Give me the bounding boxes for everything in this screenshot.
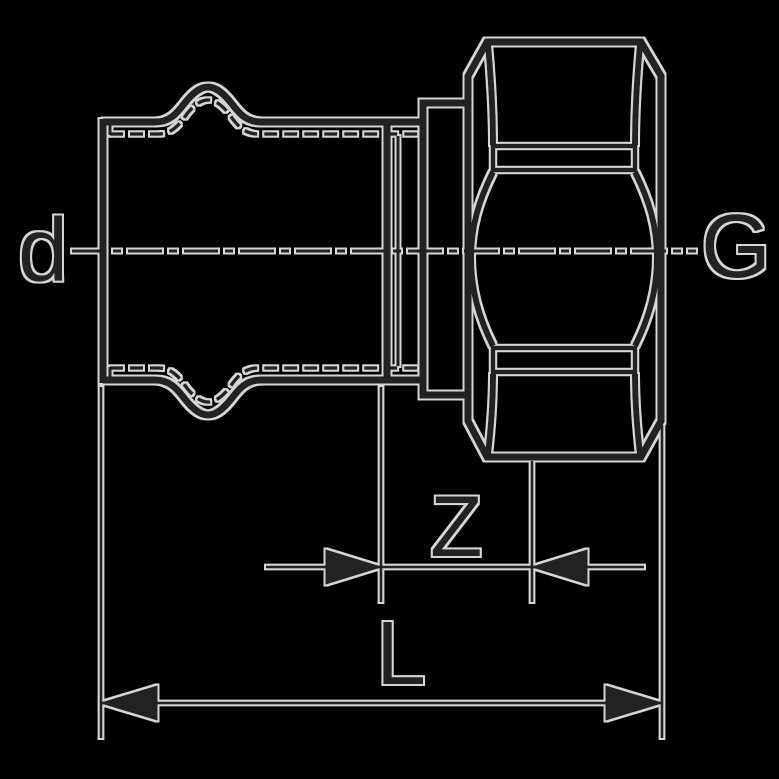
technical-drawing-canvas: d G Z L [0, 0, 779, 779]
drawing-stage: d G Z L [0, 0, 779, 779]
label-z: Z [430, 479, 483, 575]
label-g: G [701, 197, 771, 297]
label-d: d [18, 201, 68, 301]
label-l: L [376, 604, 426, 704]
